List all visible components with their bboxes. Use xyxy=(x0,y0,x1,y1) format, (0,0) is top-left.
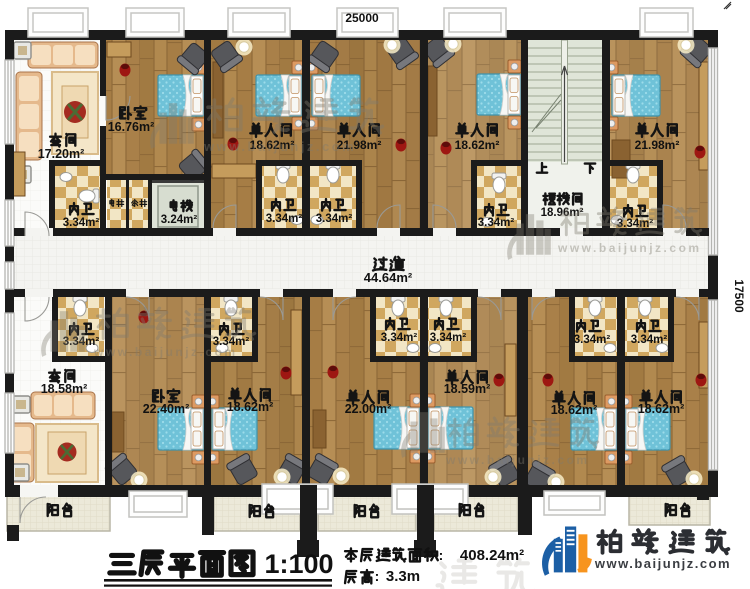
svg-text:22.00m²: 22.00m² xyxy=(345,402,392,416)
svg-text:408.24m²: 408.24m² xyxy=(460,547,524,564)
svg-text::: : xyxy=(375,568,380,584)
svg-text:18.62m²: 18.62m² xyxy=(455,138,500,152)
svg-text:www.baijunjz.com: www.baijunjz.com xyxy=(203,139,356,154)
svg-text:3.34m²: 3.34m² xyxy=(631,334,668,346)
svg-text:3.34m²: 3.34m² xyxy=(316,213,353,225)
svg-text:18.62m²: 18.62m² xyxy=(227,400,274,414)
svg-text:www.baijunjz.com: www.baijunjz.com xyxy=(557,241,702,255)
svg-text:3.34m²: 3.34m² xyxy=(478,217,515,229)
svg-text:www.baijunjz.com: www.baijunjz.com xyxy=(445,453,590,467)
svg-text:18.58m²: 18.58m² xyxy=(41,382,88,396)
svg-text:25000: 25000 xyxy=(345,11,379,25)
svg-text:18.62m²: 18.62m² xyxy=(638,402,685,416)
svg-text:44.64m²: 44.64m² xyxy=(364,270,413,285)
svg-text:3.24m²: 3.24m² xyxy=(161,214,198,226)
svg-text:18.59m²: 18.59m² xyxy=(444,382,491,396)
svg-text:3.34m²: 3.34m² xyxy=(266,213,303,225)
svg-text:17500: 17500 xyxy=(732,279,746,313)
svg-text:21.98m²: 21.98m² xyxy=(635,138,680,152)
svg-text:18.62m²: 18.62m² xyxy=(551,403,598,417)
svg-text:www.baijunjz.com: www.baijunjz.com xyxy=(594,556,731,571)
svg-text:1:100: 1:100 xyxy=(264,549,333,579)
svg-text:22.40m²: 22.40m² xyxy=(143,402,190,416)
svg-text:3.34m²: 3.34m² xyxy=(381,332,418,344)
svg-text:16.76m²: 16.76m² xyxy=(108,120,155,134)
svg-text:17.20m²: 17.20m² xyxy=(38,147,85,161)
svg-text:3.3m: 3.3m xyxy=(386,568,420,585)
svg-text::: : xyxy=(439,547,444,563)
svg-text:3.34m²: 3.34m² xyxy=(63,217,100,229)
svg-text:www.baijunjz.com: www.baijunjz.com xyxy=(93,345,238,359)
svg-text:3.34m²: 3.34m² xyxy=(430,332,467,344)
svg-text:3.34m²: 3.34m² xyxy=(574,334,611,346)
